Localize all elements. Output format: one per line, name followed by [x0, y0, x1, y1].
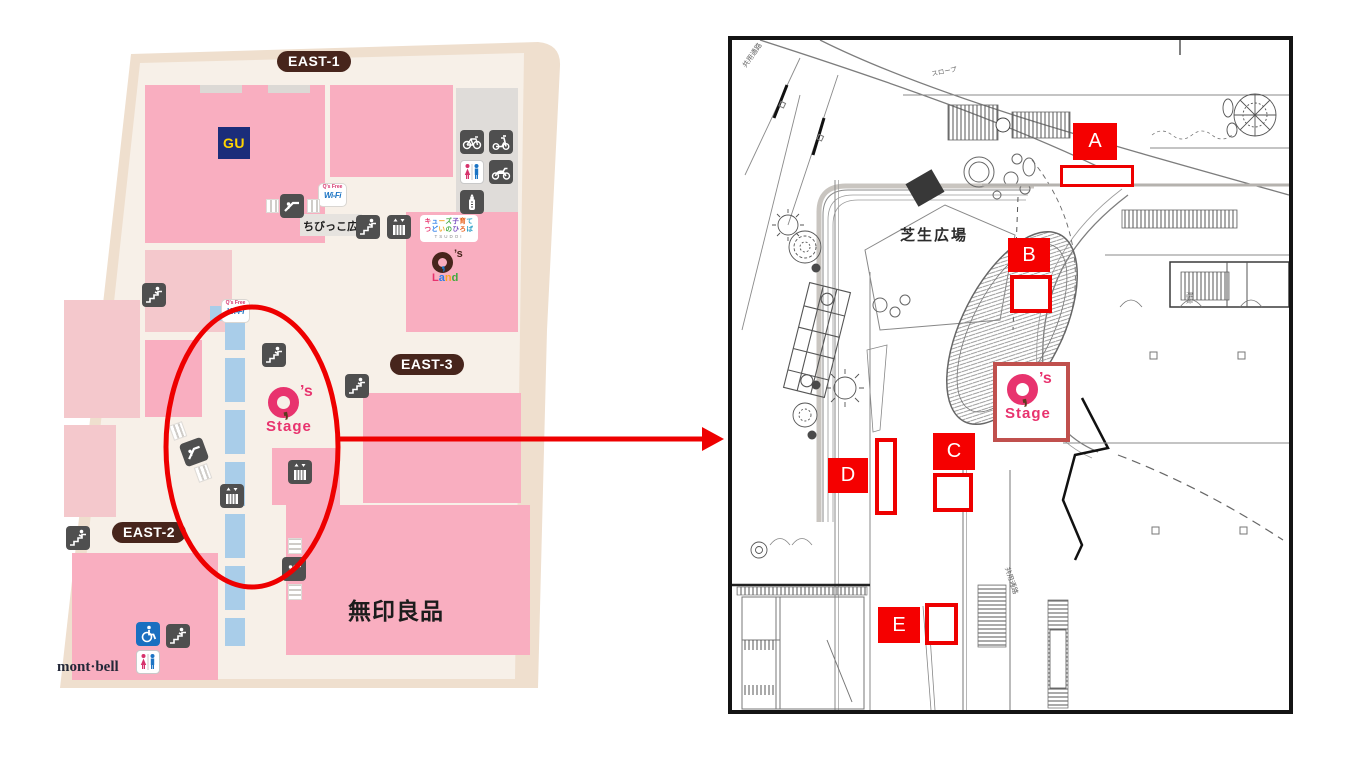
marker-e-label: E: [878, 607, 920, 643]
lawn-plaza-label: 芝生広場: [900, 226, 968, 244]
free-wifi-badge: Q's Free Wi-Fi: [318, 183, 347, 207]
tsudoi-line2: つどいのひろば: [420, 226, 478, 234]
tsudoi-line3: TSUDOI: [420, 234, 478, 240]
qs-stage-word: Stage: [1005, 405, 1051, 422]
escalator-icon: [280, 194, 304, 218]
motorcycle-parking-icon: [489, 160, 513, 184]
stairs-icon: [142, 283, 166, 307]
stairs-icon: [66, 526, 90, 550]
marker-c-label: C: [933, 433, 975, 470]
stairs-icon: [166, 624, 190, 648]
wifi-icon: Wi-Fi: [319, 191, 346, 200]
walkway-belt: [266, 199, 279, 213]
wifi-top-label: Q's Free: [222, 300, 249, 307]
escalator-belt: [288, 584, 302, 600]
escalator-icon: [282, 557, 306, 581]
slope-label: スロープ: [931, 65, 958, 78]
elevator-icon: [288, 460, 312, 484]
qs-land-apos: ’s: [454, 248, 463, 260]
tsudoi-card: キューズ子育て つどいのひろば TSUDOI: [420, 215, 478, 242]
stairs-icon: [262, 343, 286, 367]
muji-store-label: 無印良品: [348, 592, 444, 626]
marker-b-box: [1010, 275, 1052, 313]
gu-store-logo: GU: [218, 127, 250, 159]
marker-d-box: [875, 438, 897, 515]
area-badge-east3: EAST-3: [390, 354, 464, 375]
mall-map: EAST-1 EAST-2 EAST-3 GU 無印良品 ちびっこ広場 mont…: [0, 0, 700, 760]
tsudoi-line1: キューズ子育て: [420, 218, 478, 226]
stairs-icon: [345, 374, 369, 398]
qs-stage-apos: ’s: [300, 383, 313, 401]
qs-land-word: Land: [432, 272, 458, 284]
scooter-parking-icon: [489, 130, 513, 154]
marker-a-box: [1060, 165, 1134, 187]
shared-corridor-label-top: 共用通路: [740, 41, 763, 69]
qs-stage-logo-plan: , ’s Stage: [993, 362, 1070, 442]
marker-d-label: D: [828, 458, 868, 493]
stairs-room-label: 階段: [1185, 292, 1193, 304]
marker-e-box: [925, 603, 958, 645]
qs-stage-word: Stage: [266, 418, 312, 435]
page: EAST-1 EAST-2 EAST-3 GU 無印良品 ちびっこ広場 mont…: [0, 0, 1345, 760]
red-arrow-head-icon: [702, 427, 724, 451]
qs-stage-apos: ’s: [1039, 370, 1052, 388]
escalator-belt: [288, 538, 302, 554]
free-wifi-badge: Q's Free Wi-Fi: [221, 299, 250, 323]
wifi-top-label: Q's Free: [319, 184, 346, 191]
marker-c-box: [933, 473, 973, 512]
area-badge-east1: EAST-1: [277, 51, 351, 72]
marker-a-label: A: [1073, 123, 1117, 160]
floor-plan: 芝生広場 共用通路 スロープ 共用通路 階段 A B C D E , ’s St…: [728, 36, 1293, 714]
wifi-icon: Wi-Fi: [222, 307, 249, 316]
bicycle-parking-icon: [460, 130, 484, 154]
wheelchair-icon: [136, 622, 160, 646]
walkway-belt: [307, 199, 320, 213]
elevator-icon: [220, 484, 244, 508]
nursing-room-icon: [460, 190, 484, 214]
area-badge-east2: EAST-2: [112, 522, 186, 543]
montbell-store-label: mont·bell: [57, 659, 119, 676]
stairs-icon: [356, 215, 380, 239]
toilets-icon: [136, 650, 160, 674]
elevator-icon: [387, 215, 411, 239]
toilets-icon: [460, 160, 484, 184]
marker-b-label: B: [1008, 238, 1050, 272]
